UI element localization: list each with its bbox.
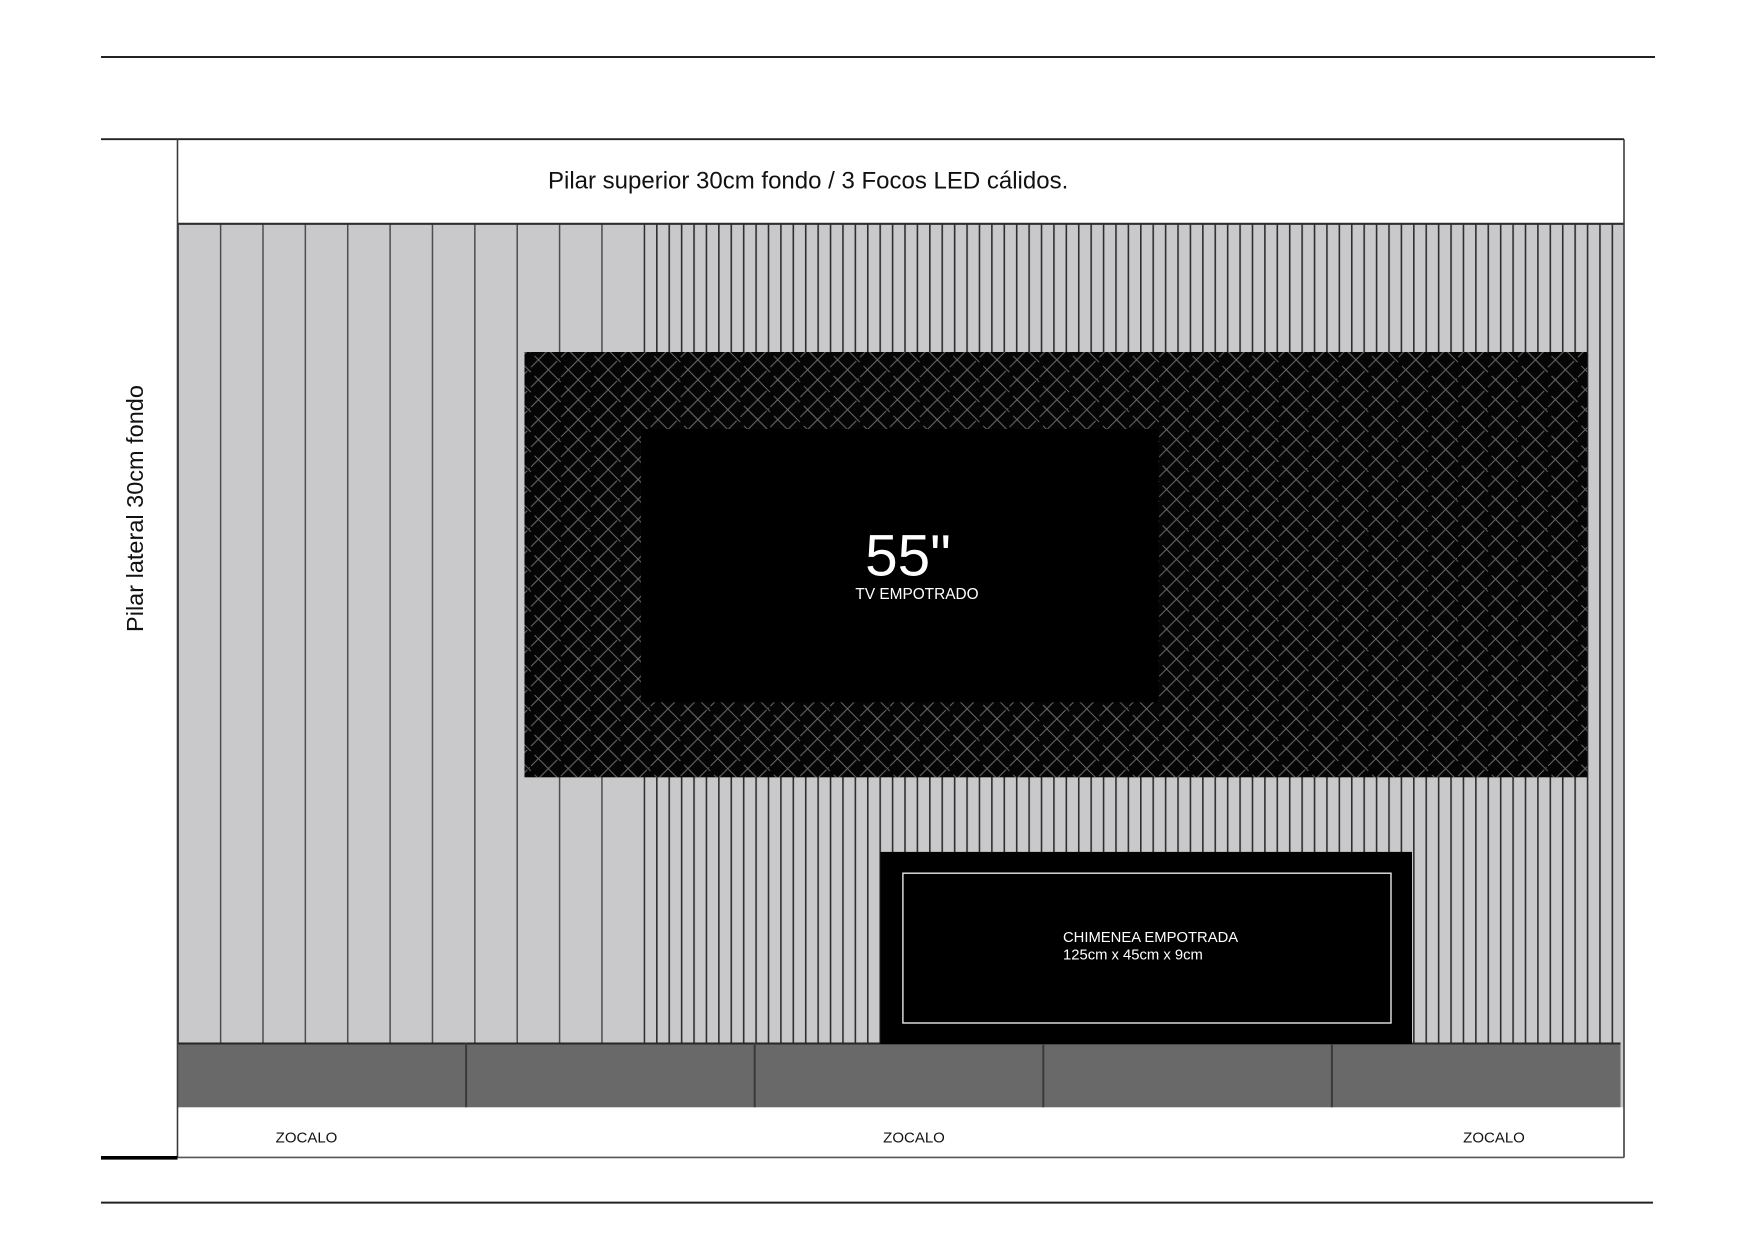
svg-text:Pilar superior 30cm fondo / 3: Pilar superior 30cm fondo / 3 Focos LED … xyxy=(548,167,1068,194)
svg-text:TV EMPOTRADO: TV EMPOTRADO xyxy=(855,586,978,603)
svg-text:Pilar lateral 30cm fondo: Pilar lateral 30cm fondo xyxy=(122,385,148,632)
svg-text:ZOCALO: ZOCALO xyxy=(1463,1130,1525,1147)
svg-text:125cm x 45cm x 9cm: 125cm x 45cm x 9cm xyxy=(1063,947,1203,963)
svg-text:ZOCALO: ZOCALO xyxy=(883,1130,945,1147)
svg-text:ZOCALO: ZOCALO xyxy=(276,1130,338,1147)
svg-text:55": 55" xyxy=(865,524,951,589)
svg-text:CHIMENEA EMPOTRADA: CHIMENEA EMPOTRADA xyxy=(1063,930,1238,946)
